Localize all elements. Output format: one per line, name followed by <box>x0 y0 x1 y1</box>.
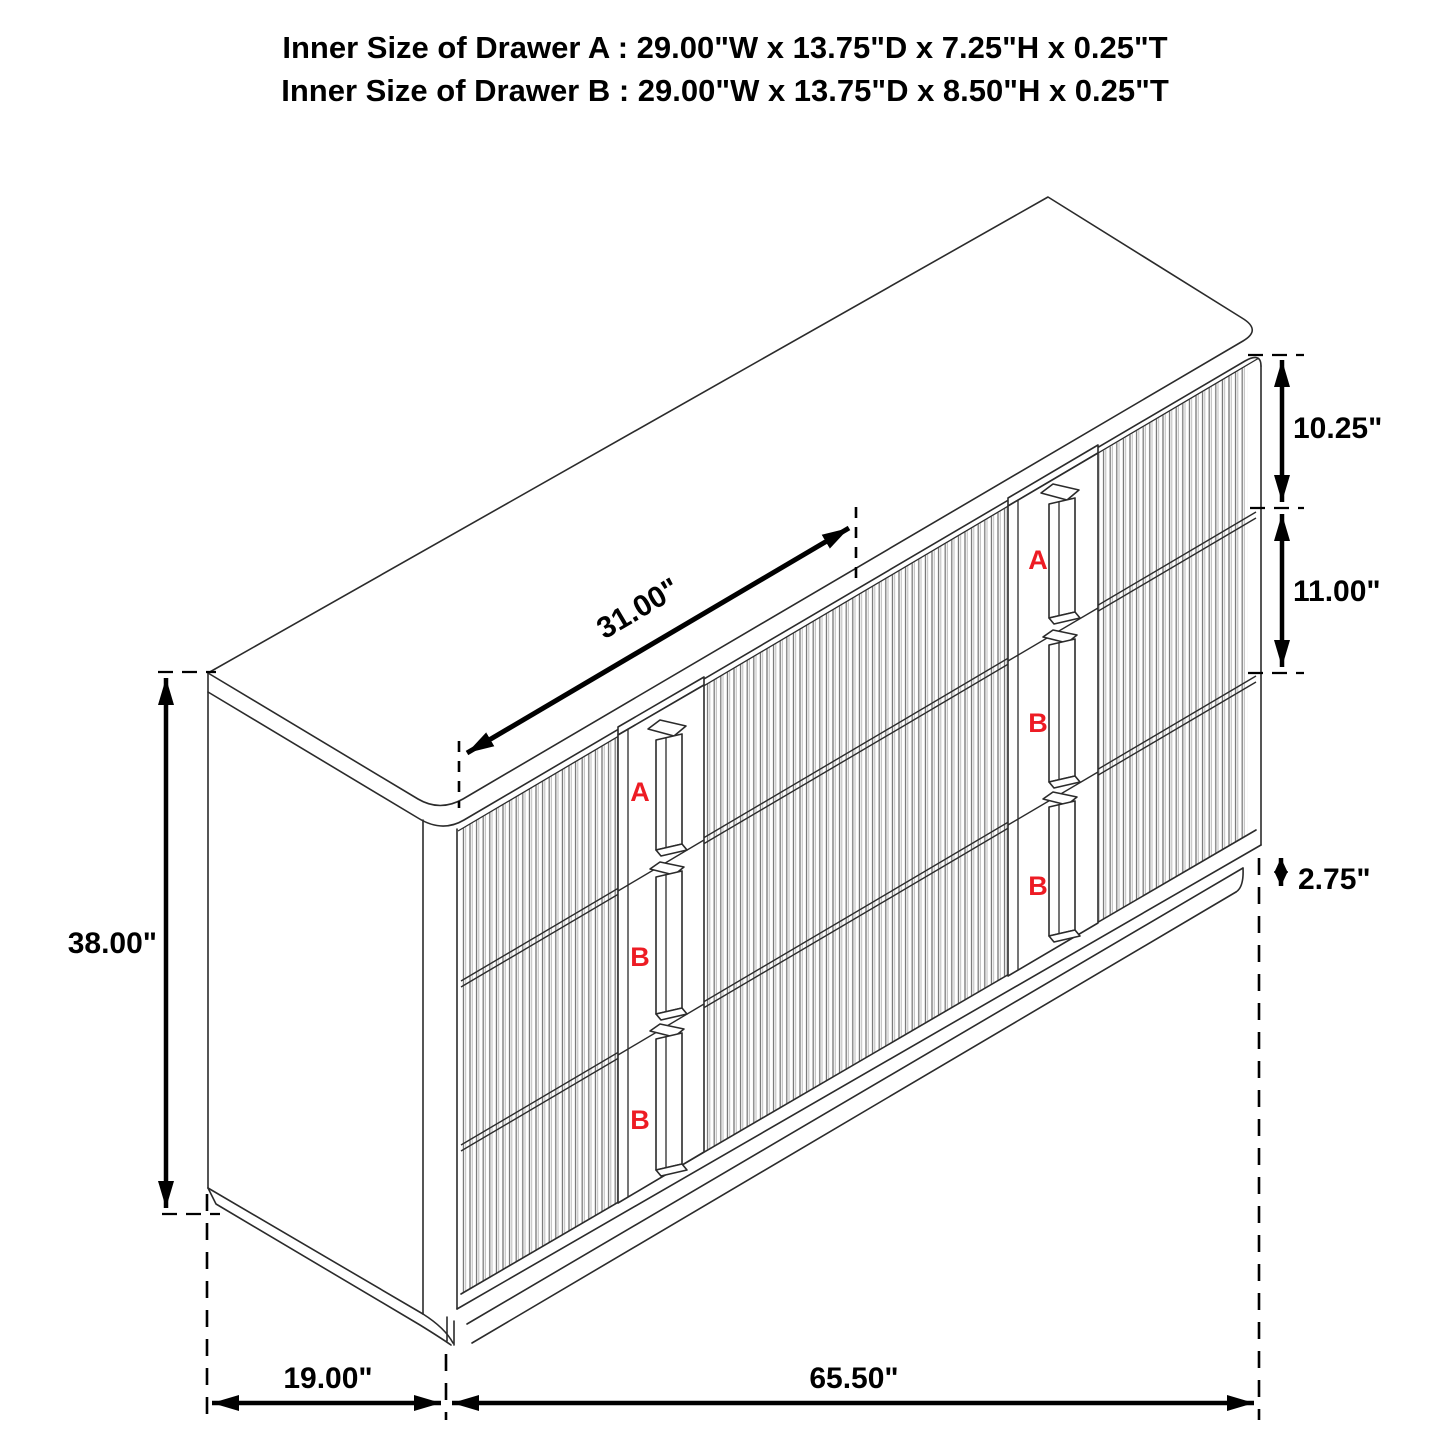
dresser-dimension-diagram: A B B A B B 10.25" 11.00" 2.75" <box>0 0 1445 1445</box>
dresser-dimension-diagram-page: A B B A B B 10.25" 11.00" 2.75" <box>0 0 1445 1445</box>
title-line-2: Inner Size of Drawer B : 29.00"W x 13.75… <box>281 73 1169 108</box>
dim-drawer-a-height: 10.25" <box>1248 355 1382 502</box>
dim-label-overall-width: 65.50" <box>809 1362 898 1395</box>
drawer-label-right-a: A <box>1028 545 1048 575</box>
dim-label-overall-height: 38.00" <box>68 927 157 960</box>
dim-label-drawer-b-height: 11.00" <box>1293 575 1381 608</box>
title-line-1: Inner Size of Drawer A : 29.00"W x 13.75… <box>282 30 1167 65</box>
handle-left-drawer-b1 <box>650 862 687 1020</box>
dim-drawer-b-height: 11.00" <box>1248 508 1381 673</box>
fluted-panel-left <box>461 737 618 1294</box>
drawer-label-right-b2: B <box>1028 871 1048 901</box>
drawer-label-right-b1: B <box>1028 708 1048 738</box>
fluted-panel-right <box>1098 365 1248 922</box>
handle-right-drawer-b1 <box>1043 630 1080 788</box>
dim-overall-height: 38.00" <box>68 672 220 1214</box>
drawer-label-left-b2: B <box>630 1105 650 1135</box>
drawer-label-left-b1: B <box>630 942 650 972</box>
handle-left-drawer-b2 <box>650 1024 687 1176</box>
cabinet-drawing: A B B A B B <box>208 197 1261 1345</box>
title-block: Inner Size of Drawer A : 29.00"W x 13.75… <box>281 30 1169 108</box>
handle-right-drawer-b2 <box>1043 792 1080 942</box>
dim-label-drawer-a-height: 10.25" <box>1293 412 1382 445</box>
drawer-label-left-a: A <box>630 777 650 807</box>
dim-label-overall-depth: 19.00" <box>283 1362 372 1395</box>
dim-base-height: 2.75" <box>1281 858 1371 896</box>
dim-label-base-height: 2.75" <box>1298 863 1371 896</box>
